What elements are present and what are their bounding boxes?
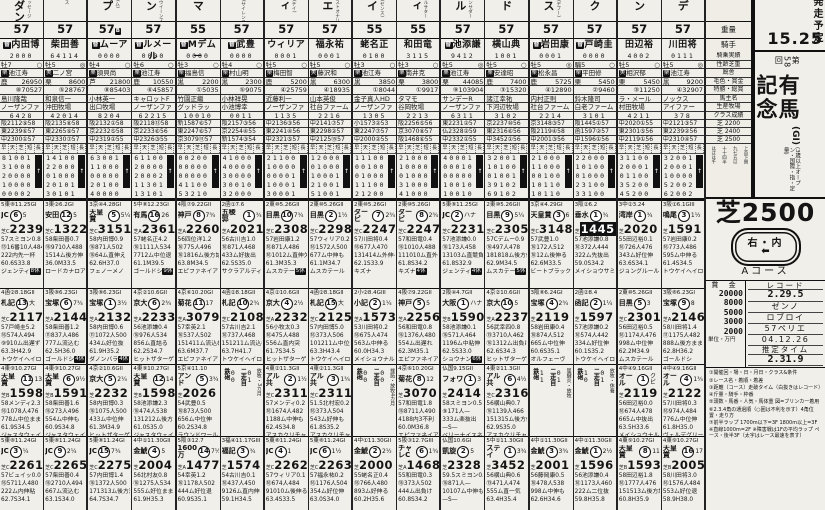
race-time: 2260 — [186, 222, 220, 236]
race-jockey-line: 58スミヨン0.5 — [442, 400, 483, 408]
race-time-line: 芝A2021 — [222, 223, 262, 236]
condition-header-char: 長 — [388, 144, 397, 153]
legend-condition-line: 上合下関 — [742, 146, 747, 196]
winner-name: ムスカテール — [619, 357, 654, 363]
coat-prize-cell: 黒2200 — [177, 78, 220, 87]
race-name-line: アル共21½ — [266, 373, 307, 387]
race-name-line: ダービ72¾ — [354, 209, 395, 223]
race-pace-line: 63.3H43.4 — [310, 348, 350, 356]
legend-row: 毛色・賞金 — [706, 78, 751, 87]
jockey-cell: 替武豊 — [221, 39, 263, 52]
horse-column: マ55替Mデムー0000牡3○栗福島信黒2200①5035竹園正繼グッドラッ10… — [177, 0, 221, 510]
trainer-name: 安達昭 — [494, 69, 514, 77]
distance-record-cell: 東2316⑥56 — [485, 128, 527, 136]
trainer-name: 福島信 — [185, 69, 205, 77]
condition-header-char: 芝 — [282, 144, 291, 153]
winner-name: メイショウナルト — [354, 357, 395, 363]
race-jockey-line: 57岩田康0.2 — [663, 236, 703, 244]
fresh-run-stats: 鉄砲1 1二走目0 1屈腱炎・放牧 — [531, 365, 572, 431]
race-position-line: 554ム出遅れ — [398, 340, 438, 348]
race-time-line: 芝C2311 — [266, 387, 307, 400]
horse-name-cell: ンウイーンズ — [132, 0, 174, 22]
race-post-line: ⑯173人458 — [442, 244, 483, 252]
race-post-line: ⑯1010人488 — [398, 244, 438, 252]
distance-record-cell: 東2231②57 — [441, 120, 484, 128]
race-jockey-line: 56北村友0.8 — [133, 472, 173, 480]
race-name: 札記 — [222, 300, 236, 307]
total-prize-cell: ⑤28767 — [44, 86, 86, 95]
condition-header-char: 天 — [9, 144, 18, 153]
race-position-line: 665ム中抜出 — [619, 416, 660, 424]
distance-record-cell: 中2141⑦57 — [309, 120, 351, 128]
breeder-cell: 出口牧場 — [88, 103, 131, 112]
race-box: 4東⑨10.27GI天皇賞69½芝B159158柴田善1.6⑯273人49655… — [44, 364, 86, 436]
race-time-line: 芝C2239 — [1, 223, 42, 236]
finish-margin: 5 — [73, 213, 77, 219]
owner-cell: ラ・メール — [618, 95, 661, 104]
race-jockey-line: 55蛯名正0.4 — [354, 472, 395, 480]
race-box: 4函②8.18GII札記13大芝C211757戸崎圭5.2⑯574人494⑨91… — [0, 288, 43, 364]
turf-mark: ○ — [125, 61, 131, 69]
race-time-line: 芝A2237 — [486, 311, 526, 324]
finish-position: 6 — [60, 298, 72, 310]
finish-position: 7 — [372, 210, 384, 222]
jockey-cell: ウィリア — [265, 39, 308, 52]
winner-name: ダノンバラ — [89, 357, 118, 363]
race-post-line: ⑯775人496 — [178, 244, 219, 252]
race-name: 金鯱 — [133, 448, 147, 455]
race-time: 1598 — [142, 386, 175, 400]
race-box: 4中①11.30GII金鯱22½芝200055蛯名正0.4⑯766人480893… — [353, 436, 396, 510]
condition-header-char: 早 — [353, 144, 362, 153]
race-time-line: 芝A2232 — [266, 311, 307, 324]
condition-stats-cell: 早天芝短長1410022000010002010130101↑ — [44, 144, 86, 200]
distance-record-cell: 小1573②53 — [353, 120, 396, 128]
race-pace-line: 60.2S34.8 — [178, 424, 219, 432]
stable-region-badge: 栗 — [354, 70, 362, 77]
race-pace-line: 61.8S35.2 — [310, 424, 350, 432]
race-time: 1598 — [9, 386, 43, 400]
owner-cell: 小林祥晃 — [221, 95, 263, 104]
owner-cell: 鈴木隆司 — [574, 95, 616, 104]
coat-color: 黒 — [222, 78, 229, 86]
race-post-line: ⑯437人450 — [222, 480, 262, 488]
owner-cell: 近藤利一 — [265, 95, 308, 104]
track-condition: 芝C — [486, 393, 495, 399]
race-position-line: 322ム先抜出 — [575, 252, 615, 260]
race-name-line: 金鯱33¾ — [531, 445, 572, 459]
jockey-name: 内田博 — [11, 40, 40, 50]
race-name-line: 宝塚13½ — [89, 297, 130, 311]
race-name: 目黒 — [310, 212, 324, 219]
rest-badge: 4休 — [74, 356, 85, 363]
race-name-line: アンド53¾ — [178, 373, 219, 387]
race-name: ダービ — [354, 209, 371, 223]
race-position-line: 1196ム中粘伸 — [442, 340, 483, 348]
race-time-line: 芝2000 — [354, 459, 395, 472]
race-time: 2265 — [54, 458, 87, 472]
finish-position: 4 — [546, 298, 558, 310]
total-prize-cell: ⑧70527 — [0, 86, 43, 95]
rest-badge: 4休 — [118, 356, 129, 363]
race-post-line: ⑯372人444 — [575, 244, 615, 252]
trainer-cell: 栗池江寿 — [132, 69, 174, 78]
race-pace-line: 61.9S34.5 — [1, 424, 42, 432]
finish-margin: 3¾ — [517, 449, 527, 455]
race-post-line: ⑯737人468 — [222, 332, 262, 340]
race-box: 4函②8.18GII札記15大芝C212557内田博5.0⑯373人506101… — [309, 288, 351, 364]
fresh-run-stats: 鉄砲0 0二走目0 0挫跖・放牧4カ月 — [354, 365, 395, 431]
race-header-line: 4中①11.30GII — [133, 437, 173, 445]
winner-name: エピファネイア — [398, 433, 438, 436]
track-condition: 芝C — [89, 229, 98, 235]
condition-header-char: 天 — [582, 144, 590, 153]
winner-name: ジェンティ — [1, 269, 30, 275]
race-name: 五稜郭 — [222, 209, 242, 223]
winner-name: トウケイヘイロー — [310, 357, 350, 363]
finish-position: 15 — [325, 298, 337, 310]
stable-region-badge: 栗 — [442, 70, 450, 77]
finish-margin: 7¾ — [294, 213, 304, 219]
race-header-line: 2阪④4.7GII — [442, 289, 483, 297]
track-oval-icon: 右・内 ⬅ — [731, 228, 801, 266]
finish-margin: 2¼ — [117, 377, 127, 383]
race-name-line: 五稜郭1¾ — [222, 209, 262, 223]
legend-row: 性齢芝重 — [706, 61, 751, 70]
coat-color: 黒 — [310, 78, 317, 86]
race-time: 2328 — [447, 458, 481, 472]
finish-margin: ¼ — [23, 449, 29, 455]
horse-name-cell: ィルサター — [397, 0, 439, 22]
race-box: 4東②11.3GIIアル共64½芝C231656横山典0.7⑯1139人4661… — [485, 364, 527, 436]
jockey-name: 柴田善 — [51, 40, 80, 50]
record-horse-line2: ロブロイ — [748, 313, 823, 324]
race-name-line: JC3¼ — [1, 445, 42, 459]
horse-column: ダンッセージ57替内田博2000牡7○栗池江寿鹿26950⑧70527島川隆哉ノ… — [0, 0, 44, 510]
stable-region-badge: 栗 — [575, 70, 583, 77]
total-prize-cell: ④18935 — [309, 86, 351, 95]
race-time: 1596 — [580, 458, 614, 472]
finish-margin: 1¼ — [603, 301, 613, 307]
condition-header-char: 長 — [254, 144, 262, 153]
race-winner-line: ゴールドシ4休 — [45, 356, 85, 364]
horse-column: ク57替戸崎圭0000騸5○栗平田修栗5450②9460鈴木隆司白老ファーム31… — [574, 0, 618, 510]
horse-table: ダンッセージ57替内田博2000牡7○栗池江寿鹿26950⑧70527島川隆哉ノ… — [0, 0, 706, 510]
track-condition: 芝A — [89, 317, 97, 323]
condition-header-char: 早 — [574, 144, 582, 153]
finish-margin: 1½ — [332, 449, 342, 455]
race-pace-line: 62.6H34.6 — [531, 496, 572, 504]
race-time-line: 芝C2301 — [619, 311, 660, 324]
race-header-line: 2東⑩5.26GI — [354, 201, 395, 209]
race-time-line: 芝B1598 — [1, 387, 42, 400]
horse-pedigree-fragment: ッセージ — [25, 0, 30, 21]
legend-row: 厩舎 — [706, 69, 751, 78]
total-prize-cell: ⑨103904 — [441, 86, 484, 95]
race-name-line: 垂水1¾ — [575, 209, 615, 223]
turf-mark: ○ — [301, 61, 307, 69]
race-pace-line: 61.0S35.0 — [133, 424, 173, 432]
race-box: 5東⑧11.24GIJC157¾芝C227557内田博1.4⑯1372人5001… — [88, 436, 131, 510]
distance-record-cell: 新1587⑥57 — [177, 120, 220, 128]
race-pace-line: 60.1S35.2 — [575, 348, 615, 356]
class-record-cell: 3101 — [574, 112, 616, 121]
race-name-line: ステイ13¾ — [486, 445, 526, 459]
finish-margin: 3 — [477, 377, 481, 383]
race-position-line: 111010ム直外伸 — [398, 252, 438, 260]
jockey-cell: 福永祐 — [309, 39, 351, 52]
race-pace-line: 63.6S34.1 — [619, 260, 660, 268]
distance-record-cell: 東2298②57 — [309, 128, 351, 136]
race-name-line: 目黒95¼ — [486, 209, 526, 223]
race-position-line: 334ム好位伸 — [575, 340, 615, 348]
jockey-record-cell: 4002 — [618, 52, 661, 61]
finish-position: 2 — [451, 210, 463, 222]
turf-mark: ◎ — [80, 61, 86, 69]
race-post-line: ⑯571人464 — [442, 332, 483, 340]
race-time-line: 芝C2305 — [486, 223, 526, 236]
race-post-line: ⑯273人496 — [45, 408, 85, 416]
race-pace-line: 61.7S34.5 — [266, 348, 307, 356]
race-pace-line: 61.4S34.5 — [663, 260, 703, 268]
race-header-line: 3阪⑧6.23GI — [89, 289, 130, 297]
race-jockey-line: 56池添謙0.4 — [133, 324, 173, 332]
distance-record-cell: 中2310④57 — [662, 136, 704, 144]
race-name-line: JC41 — [266, 445, 307, 459]
coat-prize-cell: 黒3850 — [353, 78, 396, 87]
race-winner-line: ショウナン6休 — [442, 356, 483, 364]
prize-money: 3850 — [379, 78, 396, 86]
race-name-line: 凱旋25 — [442, 445, 483, 459]
race-box: 2阪④4.7GII大阪1ハナ芝B159058池添謙0.1⑯571人4641196… — [441, 288, 484, 364]
race-name: 有馬 — [133, 212, 147, 219]
prize-money: 6300 — [333, 78, 350, 86]
race-name: 天皇賞 — [89, 209, 106, 223]
race-time: 1573 — [362, 310, 396, 324]
winner-name: メイショウナルト — [619, 433, 660, 436]
race-position-line: 555ム直一気 — [486, 488, 526, 496]
winner-name: アスカクリチャン — [486, 433, 526, 436]
race-jockey-line: 56和田竜0.8 — [398, 324, 438, 332]
race-time: 1445 — [580, 222, 616, 236]
race-time: 2275 — [98, 458, 132, 472]
condition-header-char: 芝 — [547, 144, 556, 153]
jockey-cell: 和田竜 — [397, 39, 439, 52]
prize-money: 9200 — [686, 78, 703, 86]
condition-header-char: 早 — [221, 144, 229, 153]
race-time-line: 芝C2125 — [310, 311, 350, 324]
race-box: 4阪⑦9.22GII神戸55芝A225656和田竜0.8⑯1376人480554… — [397, 288, 439, 364]
race-position-line: 555ム好位まま — [133, 488, 173, 496]
race-winner-line: ゴールドシ9休 — [133, 268, 173, 276]
race-name-line: 宝塚42¾ — [531, 297, 572, 311]
condition-header-char: 早 — [177, 144, 186, 153]
finish-position: 2 — [284, 374, 296, 386]
turf-mark: ○ — [36, 61, 42, 69]
legend-condition-line: はばは千 — [710, 146, 715, 196]
race-name: 京大 — [486, 300, 500, 307]
stable-region-badge: 栗 — [1, 70, 9, 77]
winner-name: オルフェーヴ — [531, 357, 566, 363]
finish-position: 5 — [413, 298, 425, 310]
condition-header-char: 芝 — [61, 144, 69, 153]
race-header-line: 5東⑧11.24GI — [89, 437, 130, 445]
legend-note-line: ③距離〔コース〕走破タイム（白抜きはレコード） — [709, 385, 822, 391]
condition-header-char: 短 — [202, 144, 211, 153]
condition-stats-cell: 早天芝短長3200120001100005200262002↑ — [662, 144, 704, 200]
race-pace-line: 61.8S34.2 — [398, 260, 438, 268]
race-pace-line: 59.0S34.2 — [575, 260, 615, 268]
total-prize-cell: ①5035 — [177, 86, 220, 95]
race-jockey-line: 58内田博0.9 — [89, 236, 130, 244]
up-arrow-icon: ↑ — [608, 155, 615, 188]
distance-record-cell: 中2125⑮57 — [309, 136, 351, 144]
race-position-line: 9126ム直内伸 — [222, 488, 262, 496]
condition-row: 10010 — [441, 190, 484, 199]
race-position-line: 998ム中位伸 — [619, 340, 660, 348]
race-name-line: JC2ハナ — [442, 209, 483, 223]
race-position-line: 444ム出負け — [398, 488, 438, 496]
race-pace-line: 61.3M35.3 — [266, 260, 307, 268]
race-pace-line: 63.4H35.4 — [486, 496, 526, 504]
finish-margin: ¾ — [647, 213, 653, 219]
race-box: 4京②10.6GII京大105芝A223756武幸四0.8⑬3710人462⑯1… — [485, 288, 527, 364]
race-name-line: 有馬1626 — [133, 209, 173, 223]
finish-margin: 2¾ — [429, 213, 439, 219]
race-time-line: 芝C2316 — [486, 387, 526, 400]
weight-cell: 55 — [177, 22, 220, 39]
race-time: 2256 — [407, 310, 440, 324]
jockey-cell: 替岩田康 — [530, 39, 573, 52]
race-box: 5阪③12.7GIIIチャレC61¾芝A146855和田竜0.3⑯373人502… — [397, 436, 439, 510]
up-arrow-icon: ↑ — [78, 155, 85, 188]
jockey-name: ウィリア — [267, 40, 305, 50]
winner-name: エピファネイア — [398, 357, 438, 363]
race-header-line: 5中⑧12.23GI — [133, 201, 173, 209]
up-arrow-icon: ↑ — [212, 155, 219, 188]
track-condition: 芝A — [266, 317, 274, 323]
race-time: 2146 — [671, 310, 704, 324]
finish-margin: ¾ — [250, 449, 256, 455]
rest-badge: 8休 — [30, 268, 41, 275]
race-position-line: 998ム中伸も — [531, 488, 572, 496]
race-name: 金鯱 — [531, 448, 545, 455]
race-name-line: 札記15大 — [310, 297, 350, 311]
race-winner-line: ゴールドシ — [663, 356, 703, 364]
track-condition: 芝C — [222, 317, 231, 323]
race-post-line: ⑯873人500 — [178, 408, 219, 416]
race-position-line: 4188内3不利 — [398, 416, 438, 424]
race-jockey-line: 56田辺裕0.5 — [619, 324, 660, 332]
race-name: 宝塚 — [89, 300, 103, 307]
race-pace-line: 64.7S34.7 — [89, 496, 130, 504]
condition-header-char: 芝 — [414, 144, 422, 153]
condition-row: 69102 — [485, 190, 527, 199]
breeder-cell: 白老ファーム — [574, 103, 616, 112]
race-box: 3阪⑧6.23GI宝塚13½芝A213258内田博0.6⑪1072人500434… — [88, 288, 131, 364]
finish-margin: 13 — [34, 377, 42, 383]
race-time-line: 芝2026 — [178, 387, 219, 400]
finish-margin: 17 — [206, 301, 214, 307]
race-name-line: 札記102¾ — [222, 297, 262, 311]
race-header-line: 4中④9.16GII — [619, 365, 660, 373]
trainer-name: 相沢郁 — [626, 69, 646, 77]
race-pace-line: 63.1S34.0 — [45, 496, 85, 504]
race-box: 4東②11.3GIIアル共21½芝C231157メンディ0.2⑯1674人482… — [265, 364, 308, 436]
distance-record-cell: 京3070⑧57 — [397, 128, 439, 136]
race-round: 第58回 — [755, 56, 799, 72]
owner-cell: ノックス — [662, 95, 704, 104]
race-post-line: ⑯5711人480 — [1, 480, 42, 488]
race-time: 3079 — [186, 310, 220, 324]
winner-name: ヒットザターゲ — [133, 357, 173, 363]
condition-header-char: 長 — [696, 144, 704, 153]
horse-name-fragment: ィ — [410, 0, 422, 21]
race-box: 5阪③12.71600万147½芝A147754幸英1.2⑯1178人50244… — [177, 436, 220, 510]
race-post-line: ⑯677人470 — [354, 244, 395, 252]
race-position-line: 91010ム後伸る — [266, 488, 307, 496]
race-time: 3452 — [491, 458, 525, 472]
race-time-line: 芝1445 — [575, 223, 615, 236]
trainer-cell: 美二ノ宮 — [44, 69, 86, 78]
race-time: 2311 — [274, 386, 308, 400]
finish-position: 2 — [457, 446, 469, 458]
coat-prize-cell: 栗5450 — [574, 78, 616, 87]
condition-row: 00002 — [0, 190, 43, 199]
race-header-line: 2東⑩5.26GII — [619, 289, 660, 297]
race-position-line: 151211ム流込む — [222, 340, 262, 348]
race-winner-line: メイショウナルト — [354, 356, 395, 364]
turf-mark: ◎ — [478, 61, 484, 69]
condition-header-char: 短 — [69, 144, 77, 153]
prize-label: 賞 金 — [708, 282, 743, 289]
race-name-line: 福記3¾ — [222, 445, 262, 459]
race-name: 京大 — [89, 376, 103, 383]
turf-mark: ○ — [654, 61, 660, 69]
race-name-line: オール41¾ — [663, 373, 703, 387]
sex-age: 牡3 — [354, 61, 365, 69]
race-box: 3京④4.29GI天皇賞36芝C314857武豊1.0⑯172人512⑯12ム後… — [530, 200, 573, 288]
breeder-cell: アイファー — [662, 103, 704, 112]
finish-position: 8 — [413, 374, 425, 386]
condition-header-char: 天 — [229, 144, 237, 153]
race-header-line: 4東⑨10.27GI — [1, 365, 42, 373]
race-winner-line: トウケイヘイロー — [222, 356, 262, 364]
race-jockey-line: 55田辺裕0.1 — [619, 236, 660, 244]
distance-record-cell: 東2247⑦57 — [353, 128, 396, 136]
stable-region-badge: 美 — [45, 70, 53, 77]
race-time: 2125 — [318, 310, 351, 324]
race-post-line: ⑪837人486 — [45, 332, 85, 340]
race-header-line: 4函②8.18GII — [1, 289, 42, 297]
race-post-line: ⑯1176人504 — [310, 480, 350, 488]
weight-cell: 57 — [441, 22, 484, 39]
start-time-value: 15.25 — [767, 31, 823, 48]
owner-cell: 山本英俊 — [309, 95, 351, 104]
winner-name: ヒットザターゲッ — [486, 357, 526, 363]
jockey-change-badge: 替 — [533, 42, 541, 49]
race-winner-line: ムスカテール — [310, 268, 350, 276]
jockey-record-cell: 0001 — [309, 52, 351, 61]
sex-age-cell: 牡5○ — [265, 61, 308, 70]
prize-value: 3000 — [708, 317, 743, 327]
distance-record-cell: 東2241④56 — [265, 128, 308, 136]
race-winner-line: ジャスタウェイ — [133, 432, 173, 436]
race-winner-line: メイショウナルト — [619, 432, 660, 436]
class-record-cell: 2216 — [309, 112, 351, 121]
condition-header-char: 短 — [379, 144, 388, 153]
jockey-record-cell: 0000 — [88, 52, 131, 61]
